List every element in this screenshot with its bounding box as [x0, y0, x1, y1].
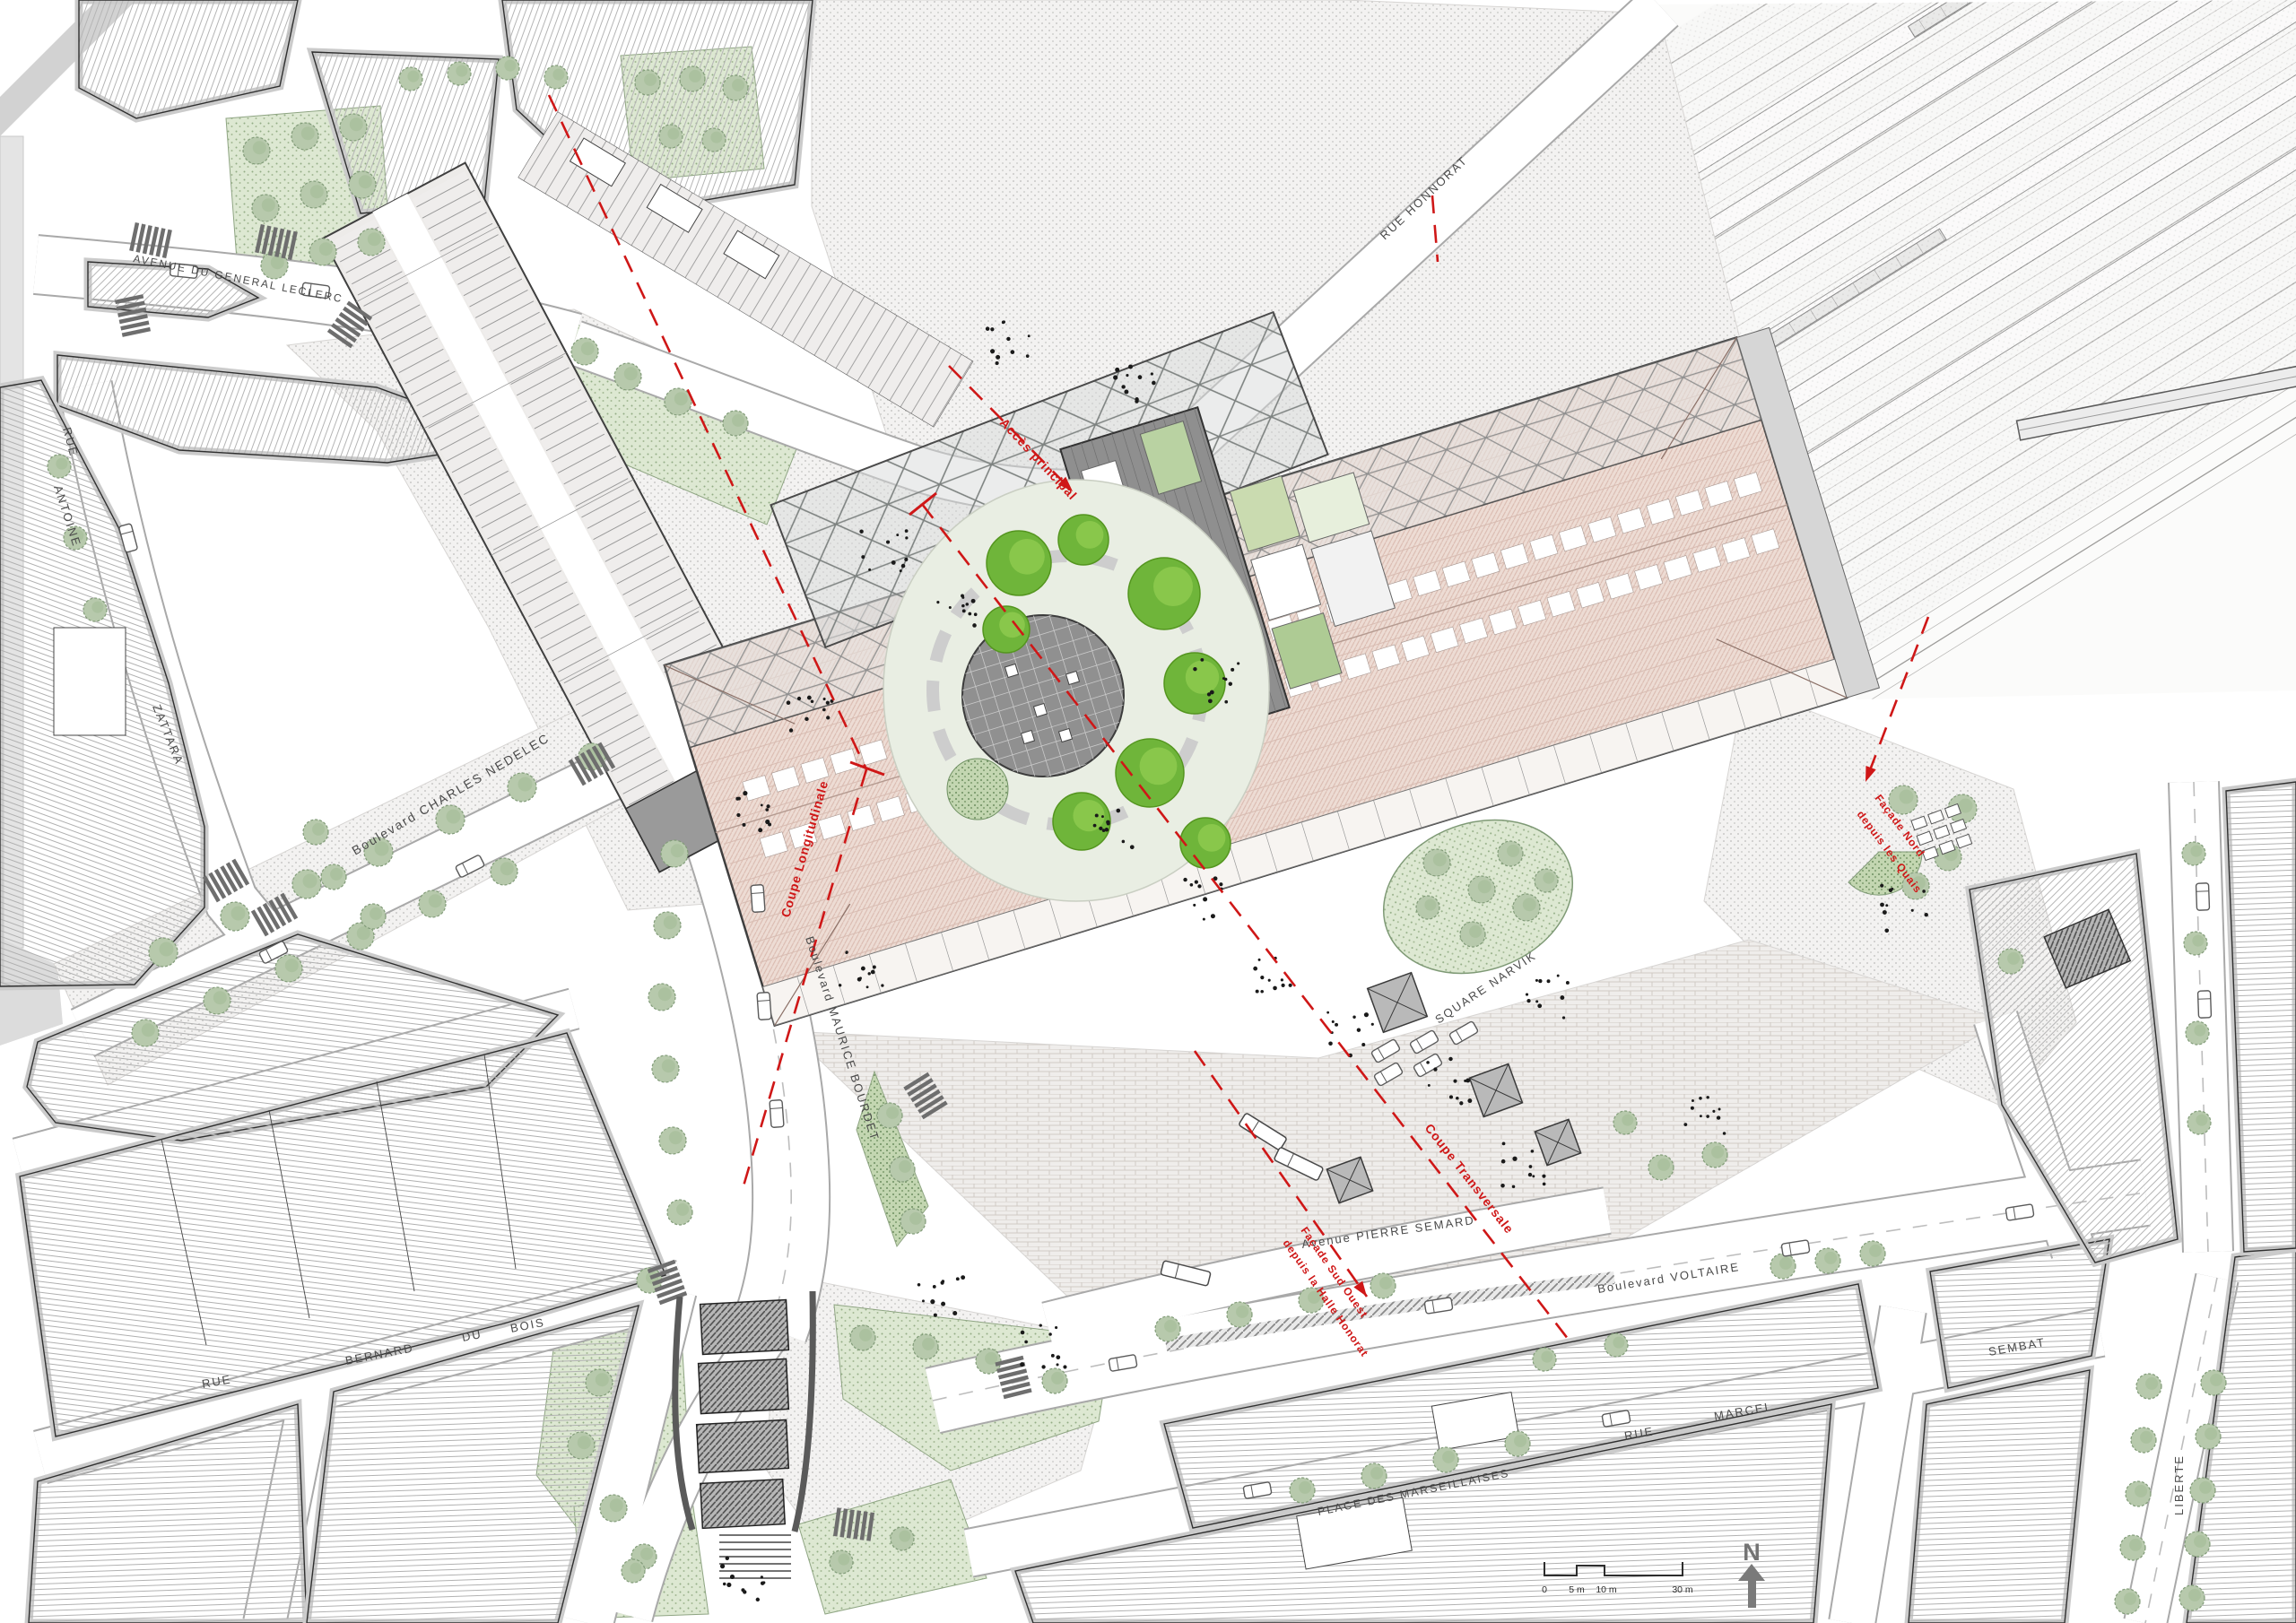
tree-icon	[680, 66, 705, 91]
tree-inner	[370, 907, 382, 920]
tree-icon	[830, 1550, 853, 1574]
tree-inner	[1424, 899, 1436, 911]
tree-inner	[1824, 1252, 1837, 1264]
scale-tick-30m: 30 m	[1672, 1584, 1693, 1595]
pedestrian-dot	[1115, 368, 1119, 372]
tree-icon	[1361, 1463, 1387, 1488]
pedestrian-dot	[1048, 1332, 1051, 1335]
pedestrian-dot	[1880, 903, 1884, 907]
pedestrian-dot	[1195, 881, 1198, 884]
pedestrian-dot	[886, 541, 890, 544]
pedestrian-dot	[1124, 389, 1128, 394]
tree-icon	[243, 137, 270, 164]
pedestrian-dot	[1352, 1015, 1355, 1018]
tree-icon	[2120, 1535, 2145, 1560]
tree-icon	[358, 229, 385, 256]
tree-icon	[891, 1527, 914, 1550]
pedestrian-dot	[905, 529, 909, 533]
pedestrian-dot	[762, 1581, 765, 1584]
tree-inner	[732, 79, 744, 91]
tree-inner	[1711, 1146, 1724, 1159]
pedestrian-dot	[1467, 1098, 1472, 1103]
tree-inner	[368, 232, 381, 246]
tree-inner	[330, 868, 343, 881]
pedestrian-dot	[1562, 1016, 1565, 1019]
pedestrian-dot	[1428, 1084, 1431, 1087]
pedestrian-dot	[949, 606, 952, 609]
tree-inner	[596, 1373, 609, 1386]
tree-inner	[658, 987, 672, 1001]
pedestrian-dot	[1456, 1097, 1459, 1100]
pedestrian-dot	[942, 1280, 944, 1282]
tree-inner	[671, 844, 684, 857]
tree-icon	[913, 1334, 938, 1359]
tree-icon	[2126, 1481, 2151, 1506]
tree-inner	[447, 809, 461, 823]
tree-inner	[312, 823, 325, 836]
tree-icon	[204, 987, 230, 1014]
tree-icon	[83, 598, 107, 621]
tree-icon	[667, 1200, 692, 1225]
metro-ramp	[700, 1480, 785, 1529]
tree-icon	[1290, 1478, 1315, 1503]
pedestrian-dot	[1459, 1101, 1463, 1105]
tree-icon	[1460, 922, 1485, 947]
tree-icon	[1533, 1348, 1556, 1371]
pedestrian-dot	[1512, 1157, 1517, 1161]
pedestrian-dot	[956, 1277, 960, 1280]
tree-inner	[644, 74, 657, 86]
metro-ramp	[700, 1300, 789, 1355]
pedestrian-dot	[1535, 979, 1538, 982]
car-body	[751, 885, 765, 913]
pedestrian-dot	[861, 555, 865, 559]
pedestrian-dot	[1706, 1115, 1709, 1118]
tree-icon	[491, 858, 517, 885]
car-icon	[757, 993, 771, 1020]
pedestrian-dot	[723, 1583, 726, 1585]
pedestrian-dot	[1026, 354, 1030, 358]
kiosk-icon	[1368, 973, 1428, 1033]
tree-icon	[568, 1432, 595, 1459]
pedestrian-dot	[1268, 979, 1271, 982]
pedestrian-dot	[918, 1283, 921, 1287]
tree-icon	[2196, 1424, 2221, 1449]
tree-inner	[1523, 898, 1536, 911]
pedestrian-dot	[1063, 1365, 1066, 1368]
tree-inner	[2199, 1481, 2212, 1494]
tree-icon	[648, 984, 675, 1011]
pedestrian-dot	[1512, 1185, 1515, 1188]
pedestrian-dot	[873, 966, 876, 969]
pedestrian-dot	[1021, 1331, 1025, 1335]
tree-inner	[142, 1023, 155, 1037]
tree-inner	[2129, 1539, 2142, 1551]
pedestrian-dot	[1193, 904, 1196, 907]
pedestrian-dot	[996, 361, 999, 365]
pedestrian-dot	[974, 612, 978, 616]
pedestrian-dot	[1006, 337, 1010, 341]
pedestrian-dot	[761, 1575, 763, 1578]
street-label: LIBERTE	[2172, 1454, 2186, 1515]
pedestrian-dot	[990, 327, 994, 331]
tree-inner	[213, 991, 227, 1004]
pedestrian-dot	[1911, 909, 1914, 912]
bush-icon	[987, 531, 1051, 595]
tree-icon	[2190, 1478, 2215, 1503]
tree-inner	[301, 126, 315, 140]
scale-tick-10m: 10 m	[1596, 1584, 1617, 1595]
pedestrian-dot	[1281, 978, 1283, 981]
bush-highlight	[1073, 800, 1104, 831]
tree-inner	[1541, 1351, 1552, 1363]
north-letter: N	[1743, 1539, 1761, 1566]
tree-icon	[2201, 1370, 2226, 1395]
tree-icon	[340, 114, 367, 141]
bush-highlight	[1076, 521, 1104, 549]
pedestrian-dot	[743, 791, 747, 795]
tree-icon	[1227, 1302, 1252, 1327]
tree-icon	[419, 890, 446, 917]
tree-inner	[518, 777, 533, 791]
pedestrian-dot	[1448, 1057, 1452, 1061]
tree-inner	[2205, 1428, 2217, 1440]
pedestrian-dot	[1095, 813, 1099, 817]
pedestrian-dot	[1526, 999, 1530, 1002]
pedestrian-dot	[1357, 1028, 1361, 1032]
pedestrian-dot	[811, 699, 814, 703]
pedestrian-dot	[1128, 365, 1133, 369]
tree-inner	[2135, 1485, 2147, 1497]
pedestrian-dot	[986, 326, 990, 331]
tree-inner	[1543, 872, 1554, 884]
bush-icon	[1058, 515, 1109, 565]
bush-highlight	[1186, 661, 1219, 694]
tree-inner	[1370, 1467, 1383, 1480]
pedestrian-dot	[1712, 1110, 1715, 1113]
pedestrian-dot	[1056, 1363, 1058, 1366]
tree-icon	[252, 195, 279, 221]
pedestrian-dot	[826, 716, 830, 719]
tree-icon	[586, 1369, 613, 1396]
pedestrian-dot	[1101, 815, 1104, 818]
tree-inner	[303, 873, 317, 888]
tree-icon	[877, 1103, 902, 1128]
tree-icon	[1370, 1273, 1396, 1298]
pedestrian-dot	[735, 797, 739, 801]
tree-inner	[456, 65, 467, 77]
pedestrian-dot	[990, 349, 995, 353]
pedestrian-dot	[1531, 1150, 1535, 1153]
tree-inner	[899, 1531, 910, 1542]
pedestrian-dot	[1093, 824, 1097, 828]
pedestrian-dot	[768, 822, 771, 826]
pedestrian-dot	[1326, 1011, 1329, 1014]
car-body	[770, 1100, 784, 1128]
tree-icon	[303, 820, 328, 845]
pedestrian-dot	[1020, 1362, 1024, 1367]
pedestrian-dot	[1500, 1184, 1505, 1188]
pedestrian-dot	[972, 623, 977, 628]
scale-tick-5m: 5 m	[1569, 1584, 1585, 1595]
tree-icon	[292, 870, 321, 898]
tree-icon	[635, 70, 660, 95]
tree-icon	[1416, 896, 1439, 919]
pedestrian-dot	[1193, 667, 1196, 671]
tree-icon	[850, 1325, 875, 1350]
pedestrian-dot	[961, 596, 964, 599]
pedestrian-dot	[1207, 692, 1211, 696]
site-plan: AVENUE DU GENERAL LECLERCRUEANTOINEZATTA…	[0, 0, 2296, 1623]
pedestrian-dot	[797, 697, 801, 700]
pedestrian-dot	[742, 823, 745, 827]
pedestrian-dot	[1099, 827, 1102, 830]
tree-icon	[2131, 1428, 2156, 1453]
pedestrian-dot	[1010, 350, 1014, 354]
pedestrian-dot	[1122, 840, 1126, 844]
tree-icon	[1998, 949, 2023, 974]
pedestrian-dot	[1041, 1365, 1045, 1368]
tree-inner	[319, 242, 333, 256]
tree-icon	[349, 171, 376, 198]
tree-icon	[149, 938, 178, 967]
pedestrian-dot	[1055, 1326, 1057, 1329]
pedestrian-dot	[1190, 883, 1194, 887]
tree-inner	[1433, 853, 1447, 866]
pedestrian-dot	[1883, 910, 1887, 915]
pedestrian-dot	[1529, 1165, 1533, 1168]
pedestrian-dot	[1273, 986, 1277, 991]
pedestrian-dot	[1028, 334, 1031, 337]
pedestrian-dot	[1547, 979, 1551, 983]
tree-icon	[1505, 1431, 1530, 1456]
tree-inner	[1657, 1159, 1670, 1171]
tree-icon	[321, 864, 346, 890]
pedestrian-dot	[1335, 1023, 1338, 1027]
tree-inner	[359, 175, 372, 188]
pedestrian-dot	[936, 601, 939, 603]
car-body	[2197, 991, 2211, 1018]
tree-inner	[2194, 1025, 2205, 1037]
car-body	[757, 993, 771, 1020]
tree-inner	[624, 367, 638, 380]
tree-inner	[662, 1059, 675, 1072]
tree-icon	[544, 65, 568, 89]
tree-icon	[309, 239, 336, 265]
courtyard	[54, 628, 126, 735]
pedestrian-dot	[1449, 1095, 1453, 1098]
tree-inner	[1164, 1320, 1177, 1332]
pedestrian-dot	[804, 717, 808, 721]
tree-inner	[1051, 1372, 1064, 1384]
pedestrian-dot	[1229, 682, 1232, 686]
pedestrian-dot	[1135, 399, 1138, 403]
tree-inner	[160, 942, 174, 956]
tree-inner	[2192, 935, 2204, 947]
pedestrian-dot	[1183, 878, 1187, 881]
metro-ramp	[699, 1358, 789, 1413]
car-icon	[2197, 991, 2211, 1018]
bush-highlight	[1140, 748, 1178, 785]
tree-icon	[2179, 1585, 2205, 1610]
tree-icon	[1702, 1142, 1727, 1167]
tree-inner	[1779, 1257, 1792, 1270]
pedestrian-dot	[1501, 1159, 1506, 1164]
pedestrian-dot	[881, 984, 883, 986]
pedestrian-dot	[868, 972, 871, 975]
pedestrian-dot	[1039, 1324, 1042, 1326]
tree-inner	[231, 906, 246, 920]
pedestrian-dot	[941, 1302, 945, 1306]
building-block	[2226, 782, 2296, 1252]
pedestrian-dot	[896, 534, 899, 536]
pedestrian-dot	[966, 603, 970, 606]
pedestrian-dot	[859, 530, 863, 534]
metro-ramp	[697, 1419, 789, 1472]
tree-icon	[1605, 1333, 1628, 1357]
tree-inner	[669, 1131, 683, 1144]
pedestrian-dot	[1211, 914, 1215, 918]
pedestrian-dot	[1718, 1107, 1721, 1110]
pedestrian-dot	[1200, 658, 1204, 662]
tree-inner	[909, 1212, 922, 1225]
pedestrian-dot	[1566, 981, 1570, 985]
pedestrian-dot	[1502, 1142, 1506, 1146]
tree-inner	[2140, 1431, 2152, 1444]
pedestrian-dot	[758, 828, 762, 832]
pedestrian-dot	[1557, 975, 1560, 977]
scale-tick-0: 0	[1542, 1584, 1547, 1595]
tree-icon	[900, 1209, 926, 1234]
tree-icon	[436, 805, 465, 834]
tree-inner	[2190, 846, 2202, 857]
tree-icon	[659, 1127, 686, 1154]
pedestrian-dot	[1426, 1061, 1430, 1064]
pedestrian-dot	[1282, 984, 1285, 987]
pedestrian-dot	[962, 609, 966, 612]
building-block	[1909, 1370, 2090, 1623]
tree-inner	[429, 894, 442, 907]
pedestrian-dot	[934, 1314, 937, 1317]
tree-inner	[1442, 1451, 1455, 1463]
pedestrian-dot	[952, 1311, 957, 1315]
tree-inner	[310, 185, 324, 198]
tree-inner	[710, 132, 722, 143]
pedestrian-dot	[1560, 995, 1564, 1000]
tree-inner	[674, 392, 688, 405]
pedestrian-dot	[1106, 820, 1110, 825]
pedestrian-dot	[726, 1583, 731, 1587]
tree-inner	[262, 198, 275, 212]
tree-icon	[2187, 1111, 2211, 1134]
tree-icon	[1860, 1241, 1885, 1266]
pedestrian-dot	[1692, 1099, 1694, 1102]
tree-inner	[1236, 1306, 1248, 1318]
pedestrian-dot	[807, 696, 812, 700]
pedestrian-dot	[1535, 1000, 1538, 1002]
north-arrow-shaft	[1748, 1579, 1756, 1608]
tree-inner	[1900, 789, 1914, 803]
car-body	[2196, 883, 2209, 910]
tree-inner	[899, 1160, 911, 1173]
tree-inner	[1299, 1481, 1311, 1494]
pedestrian-dot	[996, 355, 1000, 360]
pedestrian-dot	[1024, 1341, 1028, 1344]
tree-inner	[1514, 1435, 1526, 1447]
tree-inner	[640, 1548, 653, 1560]
pedestrian-dot	[901, 564, 906, 568]
tree-inner	[504, 60, 516, 72]
bush-icon	[983, 606, 1030, 653]
tree-icon	[291, 123, 318, 150]
bush-highlight	[1153, 567, 1193, 606]
pedestrian-dot	[730, 1575, 735, 1579]
tree-icon	[496, 56, 519, 80]
pedestrian-dot	[1683, 1123, 1687, 1126]
tree-inner	[676, 1203, 689, 1216]
pedestrian-dot	[1433, 1067, 1437, 1071]
pedestrian-dot	[904, 558, 908, 561]
pedestrian-dot	[1105, 828, 1109, 831]
pedestrian-dot	[1197, 884, 1201, 888]
pedestrian-dot	[1219, 882, 1222, 886]
pedestrian-dot	[1051, 1354, 1055, 1358]
tree-icon	[361, 904, 386, 929]
tree-icon	[399, 67, 422, 91]
tree-icon	[275, 955, 302, 982]
pedestrian-dot	[1723, 1132, 1726, 1135]
tree-inner	[2124, 1593, 2136, 1605]
tree-icon	[659, 125, 683, 148]
pedestrian-dot	[1691, 1107, 1694, 1110]
tree-inner	[552, 69, 564, 81]
tree-icon	[652, 1055, 679, 1082]
tree-inner	[2007, 952, 2020, 965]
pedestrian-dot	[1364, 1012, 1369, 1017]
pedestrian-dot	[859, 976, 862, 979]
pedestrian-dot	[922, 1299, 925, 1302]
pedestrian-dot	[1922, 890, 1926, 893]
tree-icon	[1498, 841, 1523, 866]
tree-icon	[2186, 1021, 2209, 1045]
pedestrian-dot	[900, 569, 902, 572]
pedestrian-dot	[1532, 1175, 1535, 1177]
pedestrian-dot	[1056, 1355, 1060, 1359]
pedestrian-dot	[868, 568, 871, 571]
pedestrian-dot	[823, 698, 826, 700]
tree-icon	[600, 1495, 627, 1522]
bush-icon	[1180, 818, 1231, 868]
pedestrian-dot	[1371, 1023, 1374, 1026]
tree-inner	[2188, 1589, 2201, 1601]
pedestrian-dot	[933, 1285, 936, 1289]
tree-icon	[1042, 1368, 1067, 1393]
tree-icon	[702, 128, 726, 152]
tree-inner	[578, 1436, 591, 1449]
tree-inner	[667, 128, 679, 140]
pedestrian-dot	[1924, 913, 1927, 916]
pedestrian-dot	[968, 612, 971, 616]
pedestrian-dot	[1002, 321, 1004, 324]
tree-icon	[2136, 1374, 2161, 1399]
pedestrian-dot	[1542, 1175, 1545, 1178]
tree-icon	[1423, 849, 1450, 876]
tree-icon	[2182, 842, 2205, 865]
bush-icon	[1053, 793, 1110, 850]
tree-icon	[661, 840, 688, 867]
tree-inner	[1613, 1337, 1624, 1349]
tree-icon	[448, 62, 471, 85]
